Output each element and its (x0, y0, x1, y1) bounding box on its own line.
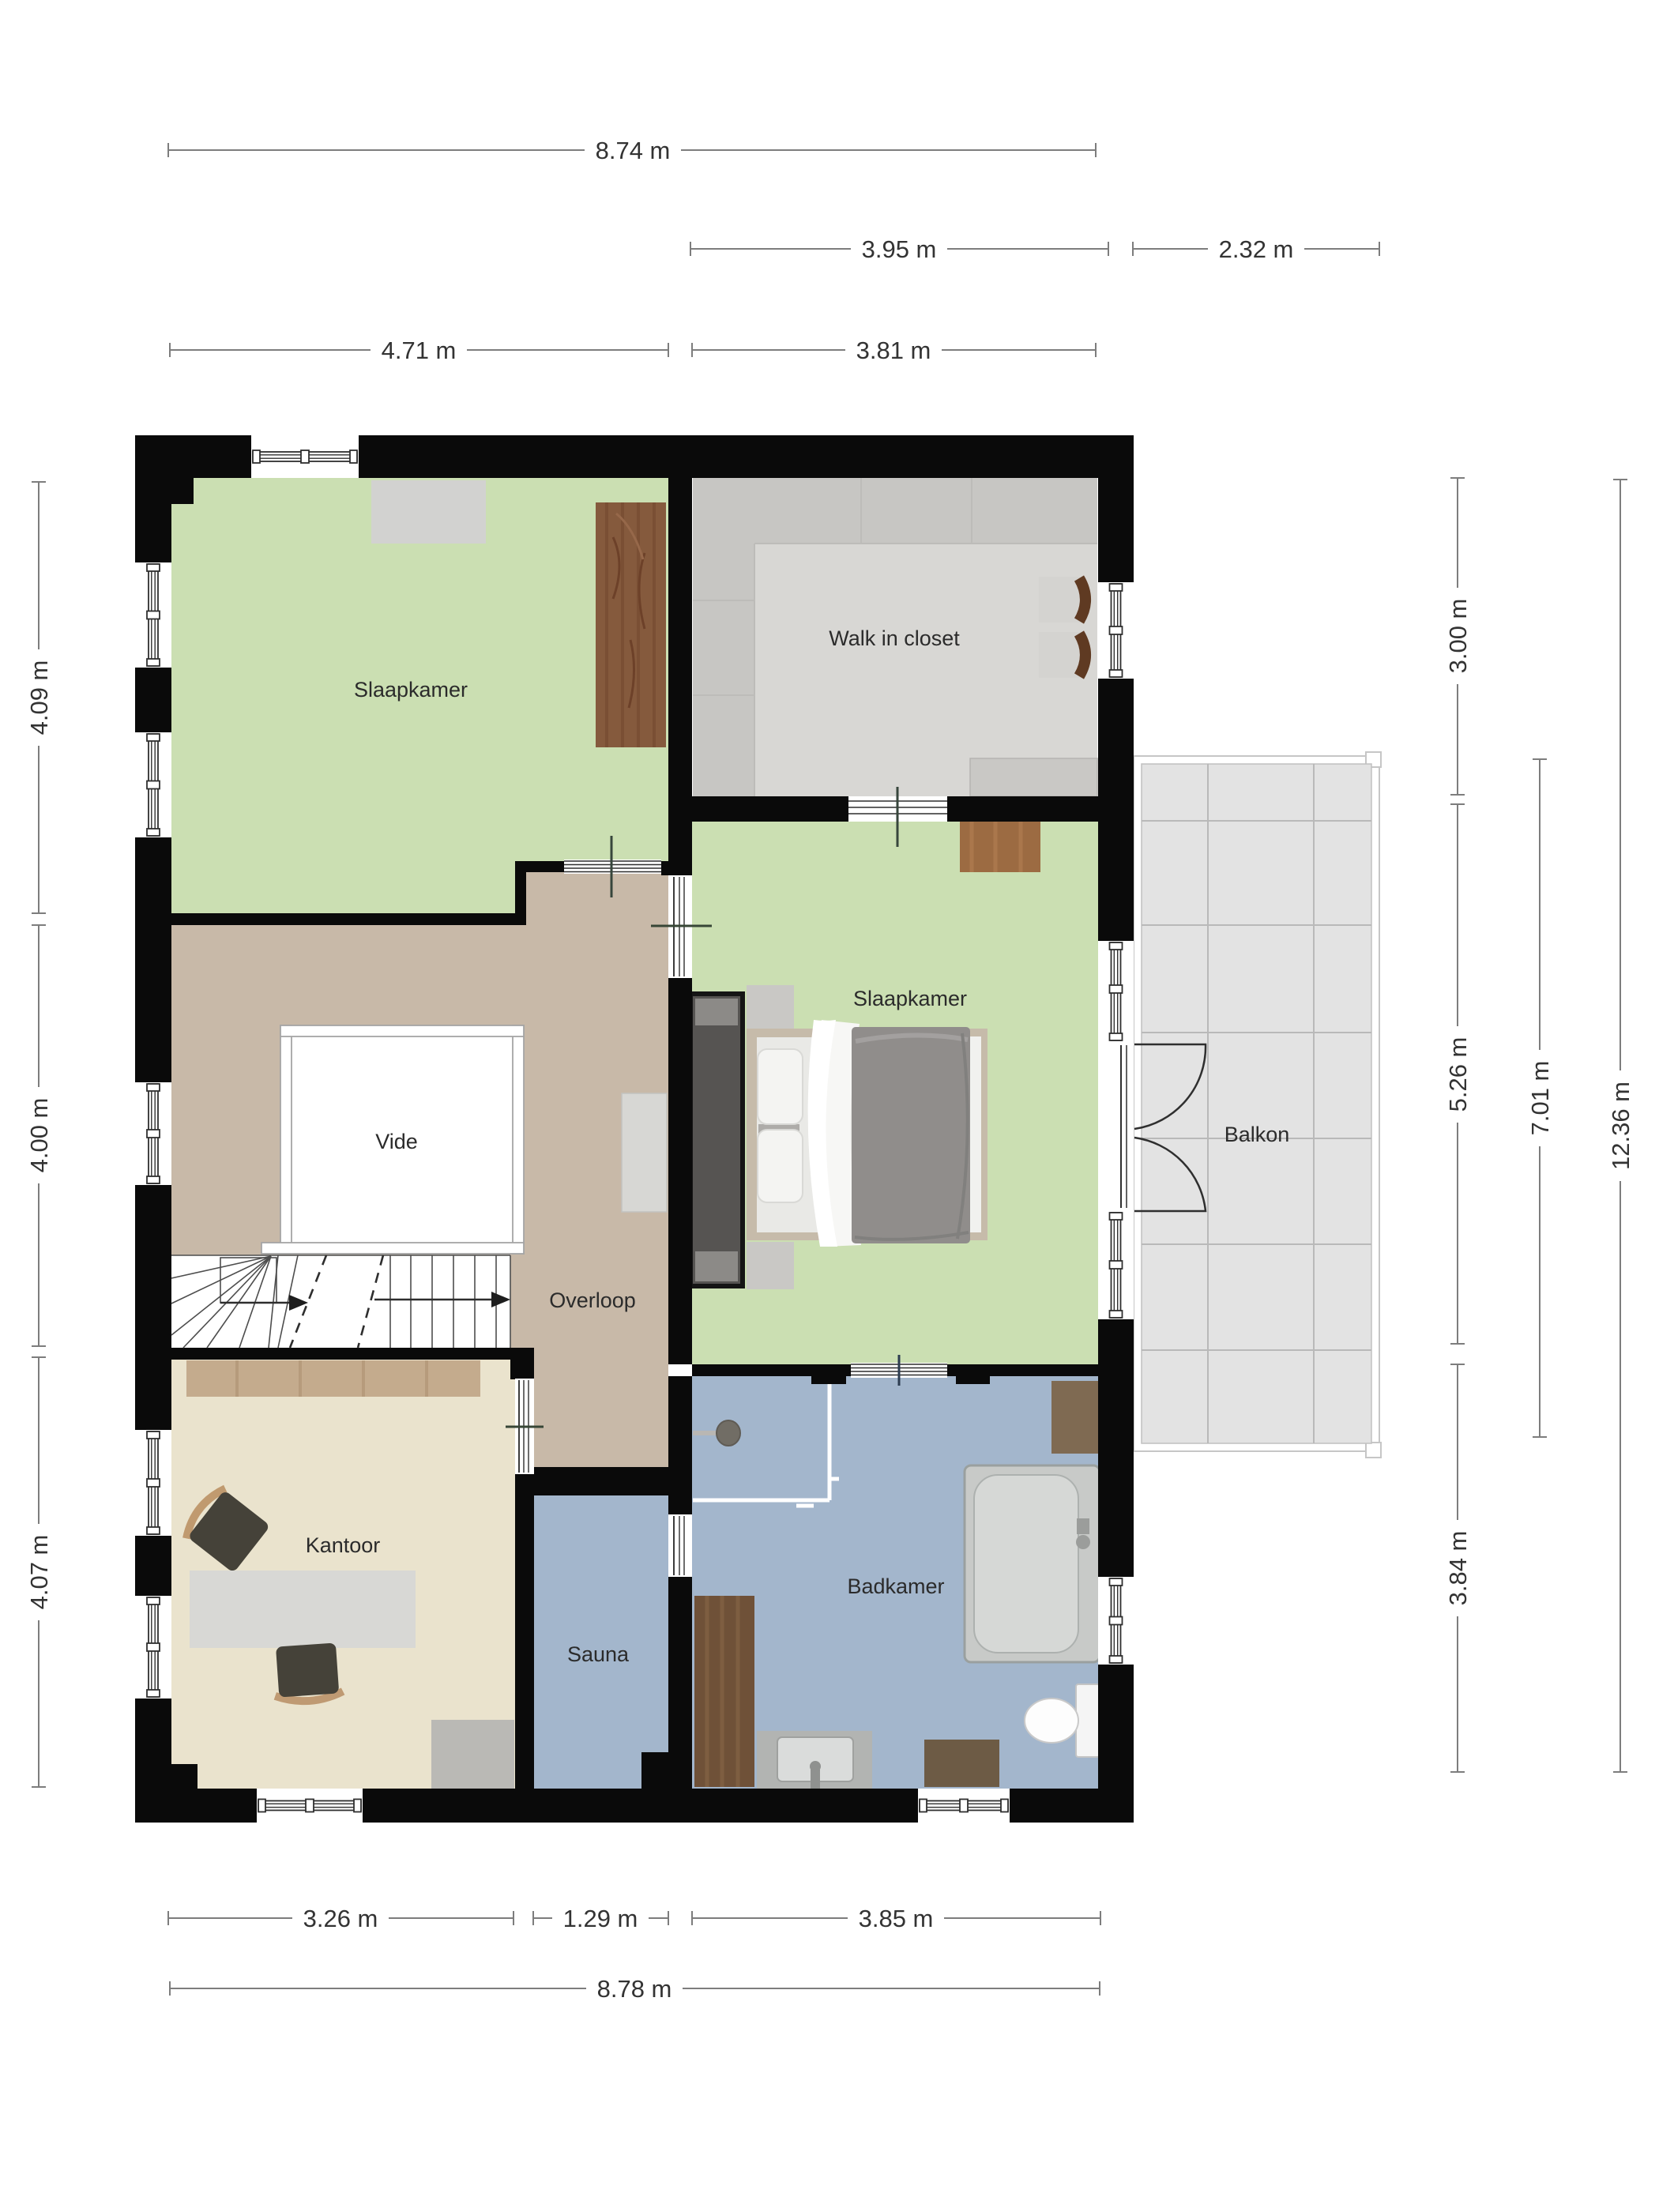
svg-text:3.26 m: 3.26 m (303, 1905, 378, 1932)
svg-text:2.32 m: 2.32 m (1219, 235, 1294, 263)
svg-text:3.85 m: 3.85 m (859, 1905, 934, 1932)
svg-text:Badkamer: Badkamer (847, 1574, 944, 1598)
svg-text:Vide: Vide (375, 1130, 418, 1153)
svg-text:Walk in closet: Walk in closet (829, 626, 960, 650)
svg-text:Slaapkamer: Slaapkamer (354, 678, 468, 702)
svg-text:3.84 m: 3.84 m (1444, 1531, 1472, 1606)
svg-text:8.78 m: 8.78 m (597, 1975, 672, 2003)
svg-text:Overloop: Overloop (549, 1288, 636, 1312)
svg-text:3.95 m: 3.95 m (862, 235, 937, 263)
svg-text:Slaapkamer: Slaapkamer (853, 987, 967, 1010)
svg-text:Sauna: Sauna (567, 1642, 630, 1666)
svg-text:1.29 m: 1.29 m (563, 1905, 638, 1932)
svg-text:4.00 m: 4.00 m (25, 1098, 53, 1173)
svg-text:8.74 m: 8.74 m (596, 137, 671, 164)
svg-text:Balkon: Balkon (1224, 1123, 1290, 1146)
svg-text:3.81 m: 3.81 m (856, 337, 931, 364)
svg-text:7.01 m: 7.01 m (1526, 1061, 1554, 1136)
svg-text:4.09 m: 4.09 m (25, 660, 53, 735)
svg-text:4.71 m: 4.71 m (382, 337, 457, 364)
svg-text:Kantoor: Kantoor (306, 1533, 381, 1557)
svg-text:3.00 m: 3.00 m (1444, 599, 1472, 674)
svg-text:5.26 m: 5.26 m (1444, 1037, 1472, 1112)
svg-text:4.07 m: 4.07 m (25, 1535, 53, 1610)
svg-text:12.36 m: 12.36 m (1607, 1082, 1635, 1170)
